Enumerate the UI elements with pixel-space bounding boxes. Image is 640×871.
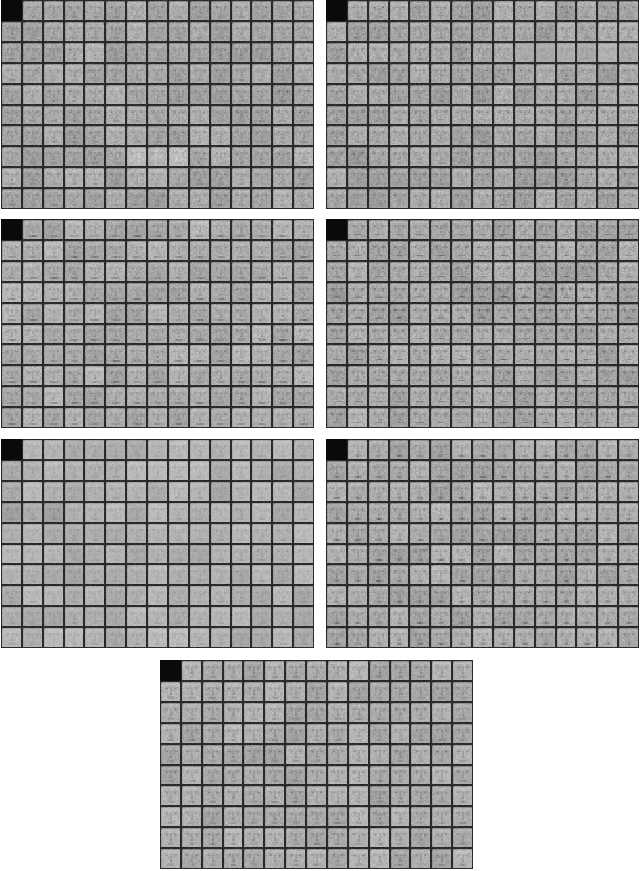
face-grid-panel-4 <box>326 219 639 428</box>
face-grid-panel-1 <box>1 0 314 209</box>
face-grid-panel-5 <box>1 439 314 648</box>
figure-montage <box>0 0 640 871</box>
face-grid-panel-6 <box>326 439 639 648</box>
face-grid-panel-3 <box>1 219 314 428</box>
face-grid-panel-2 <box>326 0 639 209</box>
face-grid-panel-7 <box>160 660 473 869</box>
